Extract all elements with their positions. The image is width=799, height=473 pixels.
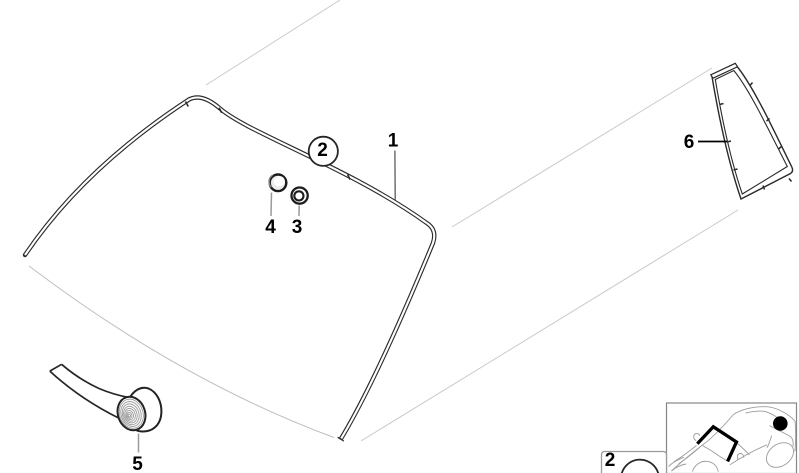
svg-text:2: 2 <box>605 450 616 471</box>
svg-text:5: 5 <box>132 454 143 473</box>
svg-text:1: 1 <box>388 131 399 152</box>
svg-text:3: 3 <box>292 217 303 238</box>
svg-text:4: 4 <box>265 217 276 238</box>
svg-text:6: 6 <box>684 132 695 153</box>
svg-text:2: 2 <box>317 140 328 161</box>
